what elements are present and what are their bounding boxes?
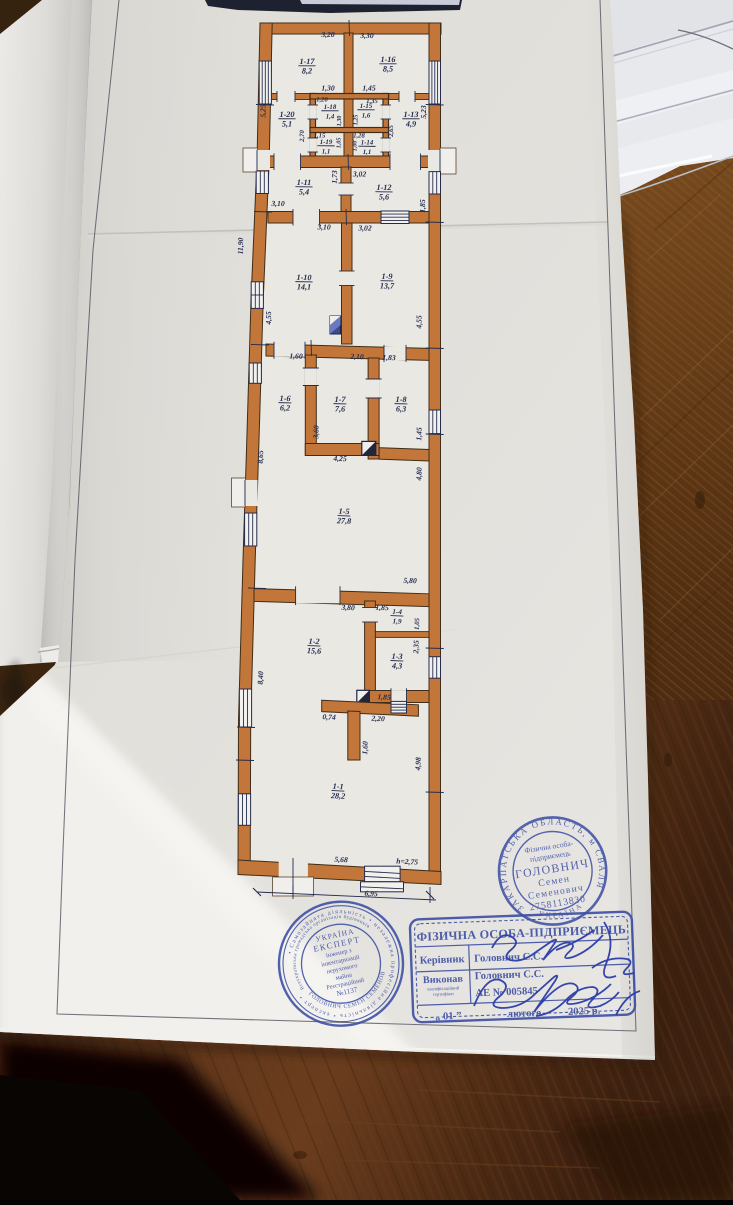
svg-text:5,4: 5,4	[299, 187, 309, 196]
svg-text:2,10: 2,10	[349, 352, 364, 361]
svg-text:28,2: 28,2	[330, 791, 346, 801]
svg-text:Виконав: Виконав	[423, 974, 464, 986]
svg-text:1-10: 1-10	[296, 273, 311, 282]
svg-text:5,6: 5,6	[379, 192, 390, 201]
svg-text:1,45: 1,45	[362, 83, 376, 92]
svg-text:h=2,75: h=2,75	[396, 856, 419, 866]
svg-text:1,05: 1,05	[414, 617, 422, 630]
svg-text:2,35: 2,35	[411, 640, 421, 655]
svg-text:27,8: 27,8	[336, 516, 352, 526]
svg-text:1-5: 1-5	[338, 507, 349, 516]
svg-text:1-14: 1-14	[361, 139, 374, 146]
svg-text:8,40: 8,40	[256, 671, 266, 685]
svg-text:1-11: 1-11	[297, 178, 312, 187]
svg-text:3,60: 3,60	[311, 425, 320, 440]
svg-text:1,6: 1,6	[362, 112, 371, 119]
svg-text:1,30: 1,30	[321, 83, 335, 92]
svg-text:13,7: 13,7	[380, 281, 395, 290]
svg-text:1-17: 1-17	[299, 57, 315, 66]
svg-text:15,6: 15,6	[307, 646, 323, 656]
svg-text:8,65: 8,65	[256, 450, 265, 464]
svg-text:1,60: 1,60	[289, 351, 303, 360]
svg-text:8,5: 8,5	[383, 64, 393, 73]
svg-text:1,60: 1,60	[360, 741, 370, 755]
svg-text:1-6: 1-6	[279, 394, 291, 403]
svg-text:5,80: 5,80	[403, 576, 417, 586]
svg-text:1,30: 1,30	[336, 116, 343, 127]
svg-text:5,23: 5,23	[419, 105, 428, 119]
svg-text:1-18: 1-18	[324, 104, 337, 111]
svg-text:11,90: 11,90	[236, 237, 245, 254]
svg-text:1-19: 1-19	[320, 139, 333, 146]
svg-text:1,9: 1,9	[392, 617, 402, 625]
svg-text:1,85: 1,85	[377, 692, 391, 702]
svg-text:6,3: 6,3	[396, 404, 406, 413]
svg-text:1-2: 1-2	[308, 637, 319, 646]
svg-text:4,80: 4,80	[414, 467, 423, 482]
svg-text:1,85: 1,85	[418, 199, 427, 213]
svg-text:5,1: 5,1	[282, 119, 292, 128]
svg-text:1,45: 1,45	[414, 427, 423, 441]
svg-text:1,83: 1,83	[382, 353, 396, 362]
svg-text:1-3: 1-3	[391, 652, 402, 661]
svg-text:1-16: 1-16	[380, 55, 396, 64]
svg-text:3,02: 3,02	[352, 169, 367, 178]
svg-text:1,85: 1,85	[375, 603, 389, 613]
svg-text:2,65: 2,65	[388, 124, 395, 137]
svg-text:1-9: 1-9	[382, 272, 393, 281]
svg-text:1,1: 1,1	[322, 148, 331, 155]
svg-text:3,20: 3,20	[320, 30, 335, 39]
svg-text:4,3: 4,3	[391, 661, 403, 671]
svg-text:1,73: 1,73	[330, 170, 339, 184]
svg-text:4,55: 4,55	[264, 311, 273, 326]
svg-text:3,10: 3,10	[270, 199, 285, 208]
svg-text:2,20: 2,20	[370, 714, 385, 724]
svg-text:1-8: 1-8	[395, 395, 406, 404]
svg-text:1,00: 1,00	[351, 141, 358, 152]
svg-text:„ 01 ”: „ 01 ”	[435, 1011, 462, 1023]
svg-text:1-7: 1-7	[334, 395, 346, 404]
svg-text:1-4: 1-4	[392, 608, 402, 616]
svg-text:14,1: 14,1	[297, 282, 311, 291]
svg-text:5,25: 5,25	[258, 104, 267, 118]
svg-text:0,74: 0,74	[322, 712, 336, 722]
svg-text:8,2: 8,2	[302, 66, 312, 75]
svg-text:4,25: 4,25	[332, 454, 347, 463]
svg-text:1,20: 1,20	[316, 96, 328, 103]
svg-text:1,25: 1,25	[352, 115, 359, 126]
svg-text:1,1: 1,1	[363, 149, 372, 156]
svg-text:1-12: 1-12	[376, 183, 391, 192]
svg-text:4,98: 4,98	[413, 757, 423, 772]
svg-text:Керівник: Керівник	[420, 954, 466, 967]
svg-text:1,05: 1,05	[335, 138, 342, 149]
svg-text:3,02: 3,02	[357, 223, 372, 232]
svg-text:6,2: 6,2	[280, 403, 290, 412]
svg-text:сертифікат: сертифікат	[433, 991, 454, 997]
svg-text:1,4: 1,4	[326, 113, 335, 120]
svg-text:1-15: 1-15	[360, 103, 373, 110]
svg-text:3,10: 3,10	[316, 222, 331, 231]
svg-text:7,6: 7,6	[335, 404, 346, 413]
svg-text:5,68: 5,68	[334, 855, 348, 865]
svg-text:1-13: 1-13	[403, 110, 418, 119]
svg-text:1-20: 1-20	[279, 110, 294, 119]
svg-text:3,30: 3,30	[359, 31, 374, 40]
svg-text:4,9: 4,9	[405, 119, 416, 128]
svg-text:2,70: 2,70	[299, 129, 306, 142]
svg-text:1-1: 1-1	[332, 782, 343, 792]
svg-text:4,55: 4,55	[414, 315, 423, 330]
svg-text:6,95: 6,95	[364, 889, 378, 899]
svg-text:3,80: 3,80	[340, 603, 355, 613]
